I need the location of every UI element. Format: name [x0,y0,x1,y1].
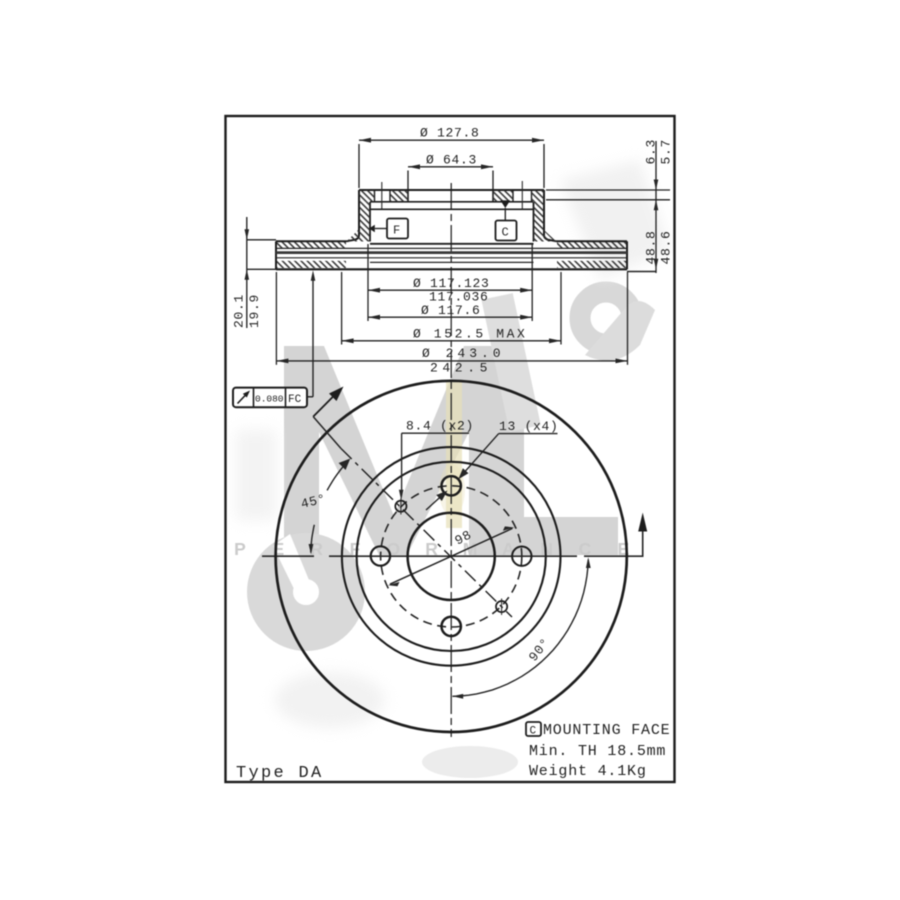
svg-text:C: C [502,226,509,240]
svg-text:6.3: 6.3 [644,139,659,165]
svg-text:Ø 243.0: Ø 243.0 [422,346,505,361]
svg-text:F: F [393,224,400,238]
svg-text:Ø 64.3: Ø 64.3 [426,152,477,167]
svg-text:90°: 90° [526,635,554,664]
svg-text:0.080: 0.080 [255,394,284,405]
svg-text:P: P [234,539,246,559]
svg-text:Weight 4.1Kg: Weight 4.1Kg [529,763,647,780]
svg-text:Ø 127.8: Ø 127.8 [420,126,480,141]
svg-text:5.7: 5.7 [659,139,674,165]
svg-text:242.5: 242.5 [430,361,492,376]
svg-text:Ø 152.5 MAX: Ø 152.5 MAX [413,327,527,342]
svg-text:Type DA: Type DA [236,764,324,783]
svg-text:48.8: 48.8 [644,230,659,264]
svg-text:C: C [530,726,537,738]
svg-text:8.4 (x2): 8.4 (x2) [406,419,474,434]
svg-text:20.1: 20.1 [232,294,247,328]
svg-text:19.9: 19.9 [247,294,262,328]
svg-text:48.6: 48.6 [659,230,674,264]
svg-text:13 (x4): 13 (x4) [499,419,559,434]
svg-text:Ø 117.6: Ø 117.6 [421,303,481,318]
svg-text:Min. TH 18.5mm: Min. TH 18.5mm [529,743,666,760]
svg-text:MOUNTING FACE: MOUNTING FACE [543,722,670,739]
svg-text:FC: FC [288,394,302,406]
